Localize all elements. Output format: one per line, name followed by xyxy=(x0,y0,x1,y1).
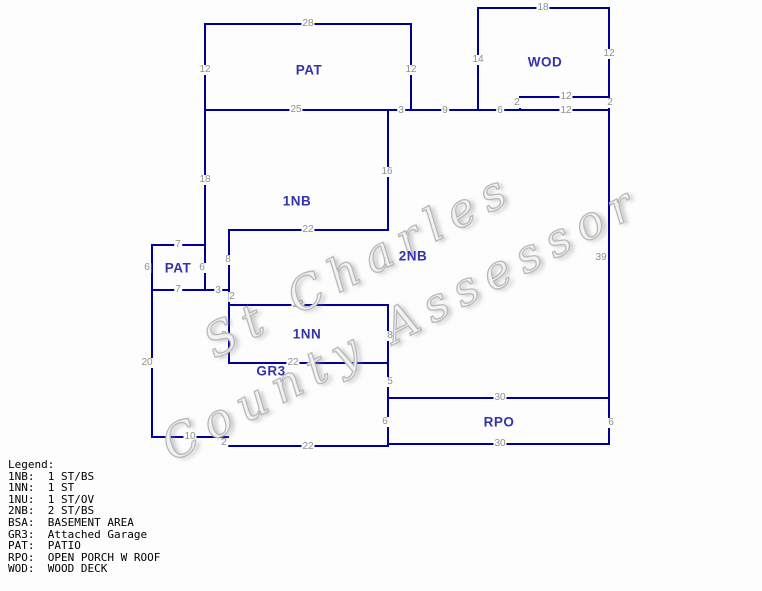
dimension-label: 8 xyxy=(224,255,232,265)
dimension-label: 3 xyxy=(214,286,222,296)
parcel-sketch-canvas: 2812122531814121222961218162276687322288… xyxy=(0,0,762,591)
dimension-label: 18 xyxy=(536,3,549,13)
area-label: RPO xyxy=(484,415,515,430)
dimension-label: 30 xyxy=(493,393,506,403)
dimension-label: 12 xyxy=(602,49,615,59)
legend-row: WOD: WOOD DECK xyxy=(8,563,160,575)
dimension-label: 18 xyxy=(198,175,211,185)
area-label: PAT xyxy=(296,63,323,78)
area-label: 1NB xyxy=(283,194,312,209)
dimension-label: 6 xyxy=(198,263,206,273)
dimension-label: 7 xyxy=(174,240,182,250)
dimension-label: 14 xyxy=(471,55,484,65)
area-label: PAT xyxy=(165,261,192,276)
dimension-label: 2 xyxy=(606,98,614,108)
legend-row: PAT: PATIO xyxy=(8,540,160,552)
dimension-label: 30 xyxy=(493,439,506,449)
dimension-label: 20 xyxy=(140,358,153,368)
legend-row: BSA: BASEMENT AREA xyxy=(8,517,160,529)
dimension-label: 5 xyxy=(386,377,394,387)
area-label: 1NN xyxy=(293,327,322,342)
area-label: GR3 xyxy=(256,364,285,379)
dimension-label: 28 xyxy=(301,19,314,29)
dimension-label: 9 xyxy=(441,106,449,116)
dimension-label: 39 xyxy=(594,253,607,263)
dimension-label: 7 xyxy=(174,285,182,295)
dimension-label: 22 xyxy=(301,225,314,235)
dimension-label: 25 xyxy=(289,105,302,115)
dimension-label: 6 xyxy=(143,263,151,273)
wall-line xyxy=(204,109,610,111)
dimension-label: 2 xyxy=(513,98,521,108)
dimension-label: 12 xyxy=(404,65,417,75)
dimension-label: 12 xyxy=(198,65,211,75)
dimension-label: 6 xyxy=(496,106,504,116)
legend-title: Legend: xyxy=(8,459,160,471)
dimension-label: 12 xyxy=(559,106,572,116)
dimension-label: 16 xyxy=(380,167,393,177)
dimension-label: 6 xyxy=(607,418,615,428)
area-label: WOD xyxy=(528,55,563,70)
area-label: 2NB xyxy=(399,249,428,264)
wall-line xyxy=(151,244,153,438)
dimension-label: 3 xyxy=(397,106,405,116)
legend: Legend: 1NB: 1 ST/BS1NN: 1 ST1NU: 1 ST/O… xyxy=(8,459,160,575)
dimension-label: 6 xyxy=(381,417,389,427)
dimension-label: 22 xyxy=(301,442,314,452)
dimension-label: 12 xyxy=(559,92,572,102)
